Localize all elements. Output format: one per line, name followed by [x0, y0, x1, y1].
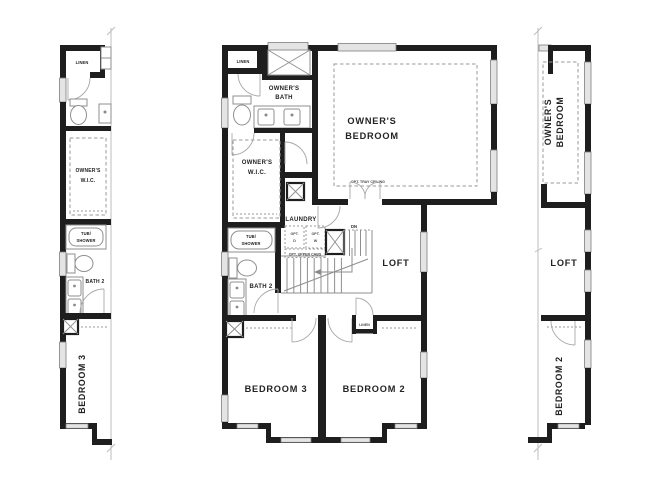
door-arc — [254, 289, 278, 313]
linen-closet: LINEN — [228, 51, 262, 96]
door-arc — [80, 289, 104, 313]
door-arc — [232, 133, 254, 155]
bedroom3-label: BEDROOM 3 — [77, 354, 87, 414]
french-doors — [350, 182, 380, 199]
partial-fixture — [101, 58, 111, 69]
bath2-label: BATH 2 — [86, 279, 105, 285]
wic-label-line1: OWNER'S — [242, 160, 273, 166]
window — [237, 424, 258, 429]
partial-fixture — [101, 47, 111, 58]
window — [491, 60, 498, 104]
tub-label-line2: SHOWER — [241, 241, 260, 246]
bathtub: TUB/ SHOWER — [66, 225, 106, 249]
duct-chase-icon — [326, 230, 344, 254]
toilet — [233, 96, 251, 125]
owners-bath-label-line1: OWNER'S — [269, 86, 300, 92]
window — [421, 352, 428, 378]
tub-label-line2: SHOWER — [76, 238, 95, 243]
window — [60, 342, 67, 368]
owners-bath-label-line2: BATH — [275, 95, 292, 101]
window — [585, 230, 592, 252]
dn-label: DN — [351, 224, 357, 229]
floor-plan: LINEN OWNER'S W.I.C. TUB/ SHOWER — [0, 0, 650, 488]
stair-winder-line — [284, 259, 368, 291]
window — [222, 395, 229, 422]
owners-bedroom-label-line2: BEDROOM — [345, 131, 399, 141]
door-arc — [238, 74, 260, 96]
window — [268, 43, 308, 51]
loft-label: LOFT — [382, 258, 409, 268]
closet-row — [541, 315, 591, 345]
owners-bedroom: OWNER'S BEDROOM — [543, 62, 578, 183]
owners-wic: OWNER'S W.I.C. — [70, 138, 106, 215]
window — [222, 98, 229, 128]
toilet — [70, 99, 87, 125]
window — [222, 252, 229, 276]
closet-x-box — [226, 321, 243, 337]
opt-washer-dryer: OPT. D OPT. W OPT. UPPER CABS — [285, 226, 325, 258]
window — [585, 270, 592, 292]
closet-row: LINEN — [222, 298, 427, 439]
owners-wic: OWNER'S W.I.C. — [222, 133, 307, 228]
vanity-sinks — [228, 279, 246, 318]
duct-chase-icon — [287, 183, 304, 200]
door-arc — [292, 318, 316, 342]
interior-wall — [66, 126, 111, 131]
window — [585, 152, 592, 194]
owners-bedroom-label-line2: BEDROOM — [555, 97, 565, 148]
linen-label: LINEN — [76, 60, 89, 65]
laundry-label: LAUNDRY — [285, 217, 316, 223]
window — [395, 424, 417, 429]
shower — [262, 45, 312, 80]
vanity-sinks — [254, 106, 310, 128]
door-arc — [356, 298, 373, 315]
bedroom2-label: BEDROOM 2 — [554, 356, 564, 416]
door-arc — [328, 318, 352, 342]
toilet — [67, 254, 93, 273]
opt-d-line2: D — [293, 239, 296, 243]
wic-label-line2: W.I.C. — [248, 170, 266, 176]
linen-label: LINEN — [359, 323, 370, 327]
loft-label: LOFT — [550, 258, 577, 268]
door-arc — [68, 78, 90, 100]
arrowhead-icon — [314, 269, 321, 275]
bath2-label: BATH 2 — [249, 284, 272, 290]
bathtub: TUB/ SHOWER — [228, 228, 275, 252]
opt-d-line1: OPT. — [291, 232, 299, 236]
interior-wall — [254, 128, 315, 133]
partial-sink — [99, 104, 111, 123]
window — [558, 424, 579, 429]
window — [66, 424, 88, 429]
window — [341, 438, 370, 443]
door-arc — [551, 321, 575, 345]
bedroom2-label: BEDROOM 2 — [343, 384, 406, 394]
toilet — [229, 258, 257, 278]
window — [585, 340, 592, 368]
window — [421, 232, 428, 272]
interior-wall — [60, 219, 111, 225]
linen-label: LINEN — [237, 59, 250, 64]
hall-linen-closet: LINEN — [352, 298, 377, 334]
closet-x-box — [63, 319, 78, 334]
opt-w-line2: W — [314, 239, 318, 243]
bedroom3-label: BEDROOM 3 — [245, 384, 308, 394]
window — [585, 62, 592, 104]
left-section: LINEN OWNER'S W.I.C. TUB/ SHOWER — [60, 27, 116, 460]
opt-w-line1: OPT. — [312, 232, 320, 236]
wic-label-line2: W.I.C. — [81, 178, 96, 184]
window — [491, 150, 498, 192]
wic-label-line1: OWNER'S — [75, 168, 101, 174]
linen-closet: LINEN — [68, 51, 105, 100]
door-arc — [285, 142, 307, 164]
tub-label-line1: TUB/ — [246, 234, 257, 239]
owners-bedroom-label-line1: OWNER'S — [347, 116, 396, 126]
owners-bedroom: OWNER'S BEDROOM OPT. TRAY CEILING — [334, 64, 477, 199]
window — [60, 252, 67, 276]
floor-plan-page: LINEN OWNER'S W.I.C. TUB/ SHOWER — [0, 0, 650, 488]
party-wall — [318, 315, 326, 439]
center-section: LINEN OWNER'S BATH — [222, 43, 498, 444]
door-arc — [318, 206, 340, 228]
window — [281, 438, 311, 443]
window — [60, 78, 67, 102]
right-section: OWNER'S BEDROOM LOFT BEDROOM 2 — [528, 27, 591, 460]
tub-label-line1: TUB/ — [81, 231, 92, 236]
owners-bedroom-label-line1: OWNER'S — [543, 99, 553, 146]
window — [338, 44, 396, 52]
